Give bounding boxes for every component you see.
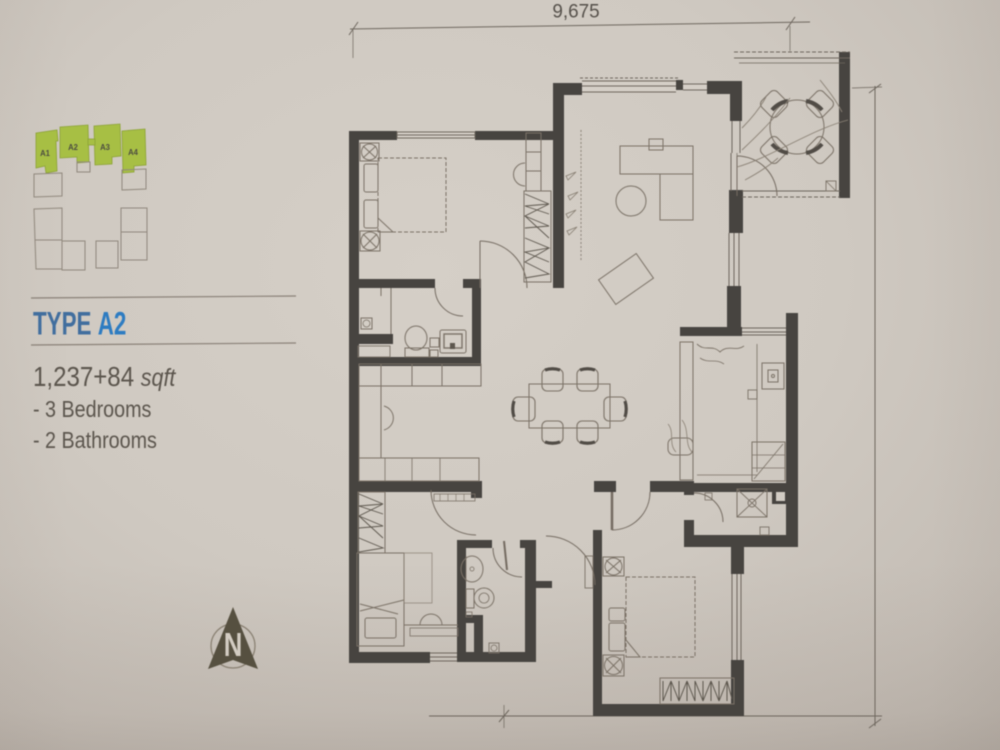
svg-text:- 3 Bedrooms: - 3 Bedrooms xyxy=(33,395,152,422)
svg-text:A3: A3 xyxy=(100,143,110,152)
svg-text:- 2 Bathrooms: - 2 Bathrooms xyxy=(33,426,157,453)
svg-text:TYPE A2: TYPE A2 xyxy=(33,306,126,342)
svg-text:A4: A4 xyxy=(128,148,138,157)
svg-text:A1: A1 xyxy=(40,149,50,158)
svg-text:1,237+84 sqft: 1,237+84 sqft xyxy=(33,360,177,392)
svg-text:N: N xyxy=(224,627,243,664)
svg-text:A2: A2 xyxy=(68,143,78,152)
svg-text:9,675: 9,675 xyxy=(552,1,599,22)
